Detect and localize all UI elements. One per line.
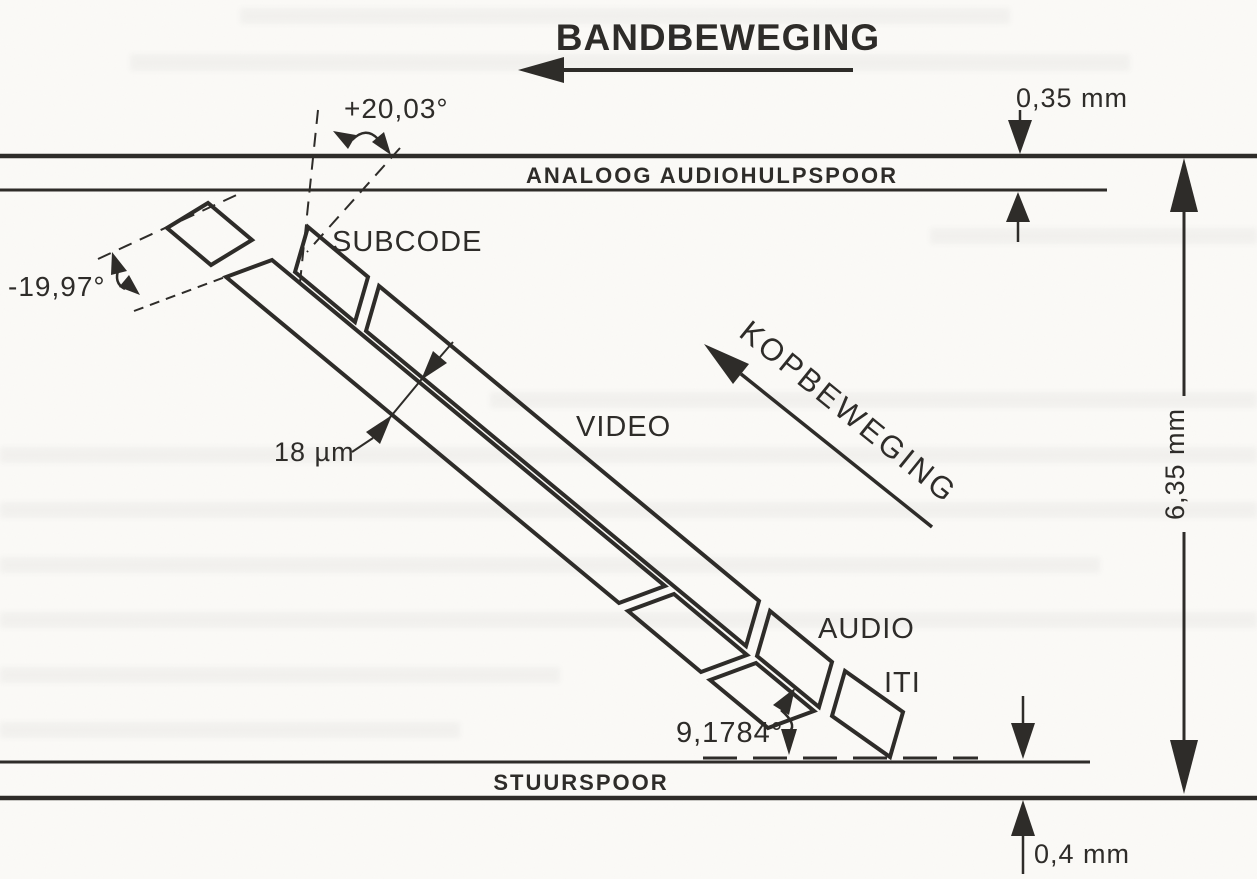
subcode-label: SUBCODE [332,226,482,258]
track-format-diagram: ANALOOG AUDIOHULPSPOOR STUURSPOOR BANDBE… [0,0,1257,879]
positive-azimuth-value: +20,03° [344,93,449,124]
scanned-page: ANALOOG AUDIOHULPSPOOR STUURSPOOR BANDBE… [0,0,1257,879]
track-width-value: 18 µm [274,437,355,467]
tape-movement-label: BANDBEWEGING [556,17,880,58]
audio-label: AUDIO [818,613,915,645]
analog-audio-track-label: ANALOOG AUDIOHULPSPOOR [526,163,898,188]
video-label: VIDEO [576,411,671,443]
tape-width-value: 6,35 mm [1160,408,1190,520]
control-track-height-value: 0,4 mm [1034,839,1130,869]
audio-track-height-value: 0,35 mm [1016,83,1128,113]
track-angle-value: 9,1784° [676,717,783,749]
iti-label: ITI [884,667,921,699]
control-track-label: STUURSPOOR [493,770,668,795]
negative-azimuth-value: -19,97° [8,271,106,302]
